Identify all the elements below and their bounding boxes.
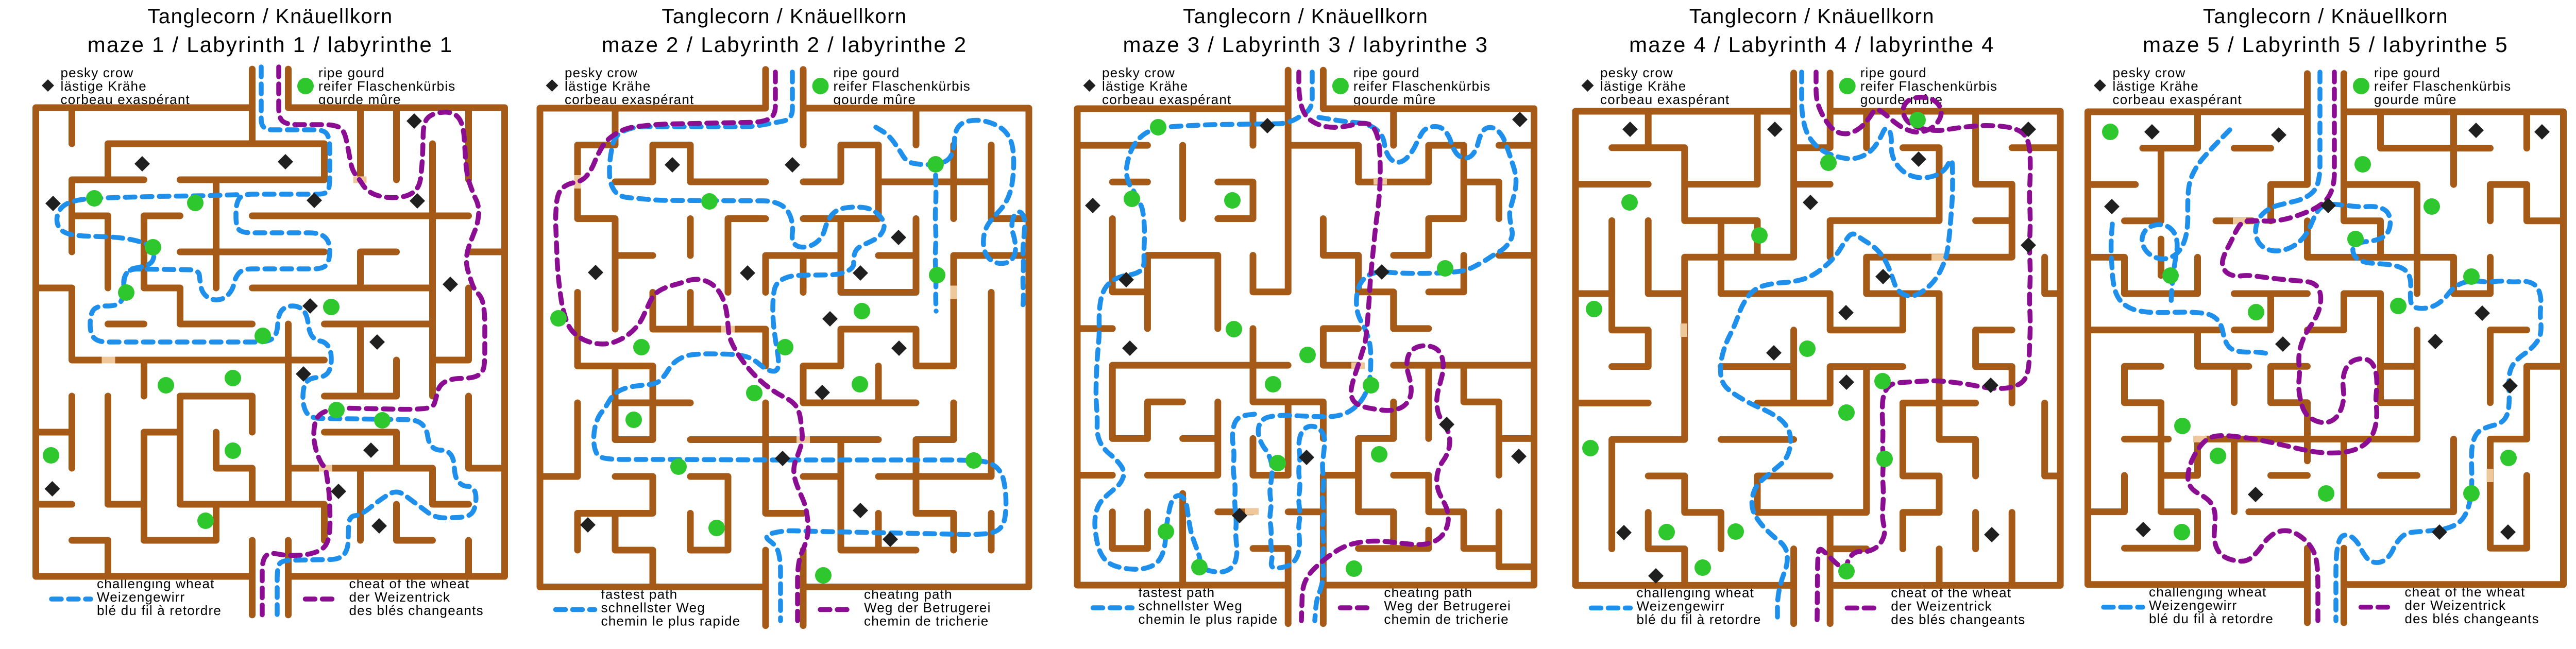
svg-text:corbeau exaspérant: corbeau exaspérant [1600,92,1730,107]
svg-text:des blés changeants: des blés changeants [349,603,484,618]
svg-text:blé du fil à retordre: blé du fil à retordre [97,603,222,618]
svg-text:blé du fil à retordre: blé du fil à retordre [2149,611,2274,626]
svg-text:maze 3 / Labyrinth 3 / labyrin: maze 3 / Labyrinth 3 / labyrinthe 3 [1123,32,1488,57]
svg-text:Tanglecorn / Knäuellkorn: Tanglecorn / Knäuellkorn [147,5,393,28]
svg-text:maze 2 / Labyrinth 2 / labyrin: maze 2 / Labyrinth 2 / labyrinthe 2 [602,32,968,57]
svg-text:gourde mûre: gourde mûre [1353,92,1436,107]
svg-text:blé du fil à retordre: blé du fil à retordre [1637,611,1761,627]
svg-text:maze 1 / Labyrinth 1 / labyrin: maze 1 / Labyrinth 1 / labyrinthe 1 [88,32,453,57]
svg-text:des blés changeants: des blés changeants [2405,611,2539,626]
svg-text:Tanglecorn / Knäuellkorn: Tanglecorn / Knäuellkorn [662,5,907,28]
svg-text:des blés changeants: des blés changeants [1891,611,2025,627]
svg-text:Tanglecorn / Knäuellkorn: Tanglecorn / Knäuellkorn [2203,5,2448,28]
svg-text:Tanglecorn / Knäuellkorn: Tanglecorn / Knäuellkorn [1183,5,1428,28]
svg-text:Tanglecorn / Knäuellkorn: Tanglecorn / Knäuellkorn [1689,5,1935,28]
svg-text:chemin de tricherie: chemin de tricherie [864,613,989,629]
svg-text:maze 5 / Labyrinth 5 / labyrin: maze 5 / Labyrinth 5 / labyrinthe 5 [2143,32,2509,57]
svg-text:corbeau exaspérant: corbeau exaspérant [2113,92,2242,107]
svg-text:maze 4 / Labyrinth 4 / labyrin: maze 4 / Labyrinth 4 / labyrinthe 4 [1629,32,1995,57]
svg-text:chemin le plus rapide: chemin le plus rapide [1139,611,1278,627]
svg-text:chemin de tricherie: chemin de tricherie [1384,611,1509,627]
svg-text:gourde mûre: gourde mûre [2374,92,2457,107]
svg-text:corbeau exaspérant: corbeau exaspérant [1102,92,1231,107]
svg-text:chemin le plus rapide: chemin le plus rapide [601,613,741,629]
